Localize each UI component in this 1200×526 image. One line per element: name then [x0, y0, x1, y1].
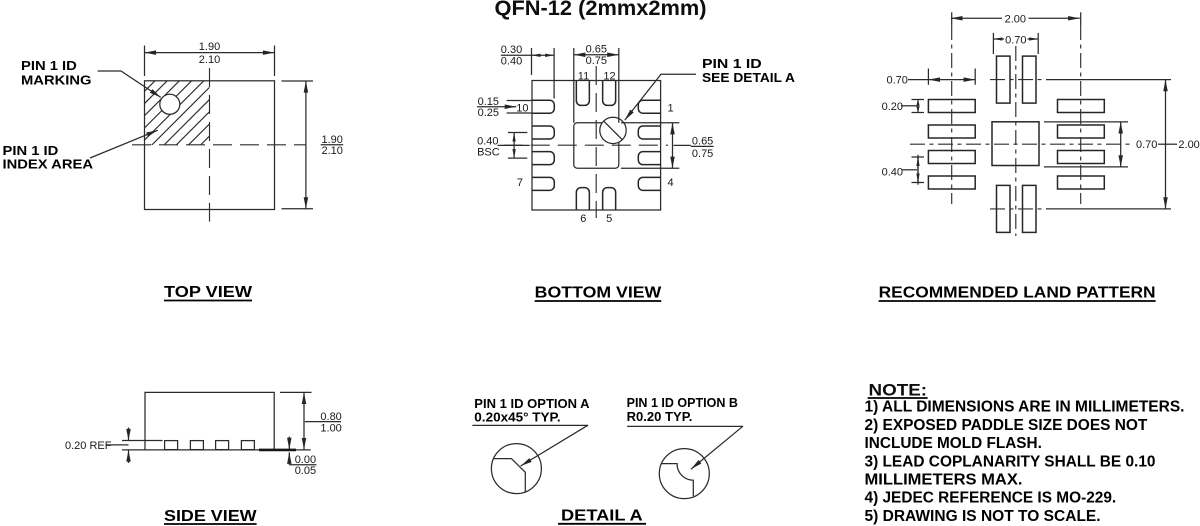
svg-text:2) EXPOSED PADDLE SIZE DOES NO: 2) EXPOSED PADDLE SIZE DOES NOT — [865, 417, 1148, 434]
svg-text:1: 1 — [668, 103, 674, 115]
svg-text:MILLIMETERS MAX.: MILLIMETERS MAX. — [865, 472, 1023, 489]
svg-text:2.00: 2.00 — [1178, 139, 1199, 151]
svg-text:1.90: 1.90 — [199, 41, 220, 53]
svg-text:BOTTOM VIEW: BOTTOM VIEW — [535, 285, 663, 302]
svg-text:1) ALL DIMENSIONS ARE IN MILLI: 1) ALL DIMENSIONS ARE IN MILLIMETERS. — [865, 399, 1185, 416]
svg-text:INDEX AREA: INDEX AREA — [3, 157, 94, 172]
svg-text:DETAIL A: DETAIL A — [561, 508, 643, 525]
svg-text:0.05: 0.05 — [295, 465, 316, 477]
svg-text:PIN 1 ID: PIN 1 ID — [21, 58, 77, 73]
svg-text:0.75: 0.75 — [692, 148, 713, 160]
svg-text:5) DRAWING IS NOT TO SCALE.: 5) DRAWING IS NOT TO SCALE. — [865, 508, 1101, 525]
svg-text:4: 4 — [668, 177, 674, 189]
svg-text:0.20x45° TYP.: 0.20x45° TYP. — [474, 410, 560, 425]
svg-text:SIDE VIEW: SIDE VIEW — [164, 508, 258, 525]
svg-text:2.10: 2.10 — [199, 54, 220, 66]
svg-text:RECOMMENDED LAND PATTERN: RECOMMENDED LAND PATTERN — [879, 285, 1156, 302]
svg-text:0.70: 0.70 — [1136, 139, 1157, 151]
svg-text:0.20 REF: 0.20 REF — [65, 440, 112, 452]
svg-text:0.15: 0.15 — [478, 96, 499, 108]
svg-text:0.70: 0.70 — [887, 75, 908, 87]
svg-text:0.75: 0.75 — [586, 55, 607, 67]
svg-text:4) JEDEC REFERENCE IS MO-229.: 4) JEDEC REFERENCE IS MO-229. — [865, 490, 1117, 507]
svg-text:0.65: 0.65 — [586, 43, 607, 55]
svg-text:SEE DETAIL A: SEE DETAIL A — [702, 70, 796, 85]
svg-text:6: 6 — [580, 213, 586, 225]
svg-text:0.40: 0.40 — [501, 56, 522, 68]
svg-text:2.10: 2.10 — [322, 145, 343, 157]
svg-text:BSC: BSC — [477, 147, 500, 159]
svg-text:0.30: 0.30 — [501, 44, 522, 56]
svg-text:0.20: 0.20 — [882, 101, 903, 113]
svg-text:1.00: 1.00 — [320, 422, 341, 434]
svg-text:NOTE:: NOTE: — [869, 381, 928, 400]
svg-text:0.40: 0.40 — [882, 167, 903, 179]
svg-text:5: 5 — [606, 213, 612, 225]
svg-text:3) LEAD COPLANARITY SHALL BE 0: 3) LEAD COPLANARITY SHALL BE 0.10 — [865, 453, 1156, 470]
svg-text:12: 12 — [603, 70, 615, 82]
svg-text:QFN-12 (2mmx2mm): QFN-12 (2mmx2mm) — [495, 0, 707, 20]
svg-text:MARKING: MARKING — [21, 73, 92, 88]
svg-text:R0.20 TYP.: R0.20 TYP. — [627, 409, 693, 424]
svg-text:PIN 1 ID OPTION B: PIN 1 ID OPTION B — [627, 395, 738, 410]
svg-text:2.00: 2.00 — [1005, 13, 1026, 25]
svg-text:0.65: 0.65 — [692, 135, 713, 147]
svg-text:PIN 1 ID: PIN 1 ID — [702, 56, 762, 71]
svg-text:7: 7 — [517, 177, 523, 189]
svg-text:0.70: 0.70 — [1005, 34, 1026, 46]
svg-text:INCLUDE MOLD FLASH.: INCLUDE MOLD FLASH. — [865, 435, 1042, 452]
svg-text:11: 11 — [578, 70, 589, 82]
svg-text:0.25: 0.25 — [478, 107, 499, 119]
svg-text:TOP VIEW: TOP VIEW — [164, 284, 253, 301]
